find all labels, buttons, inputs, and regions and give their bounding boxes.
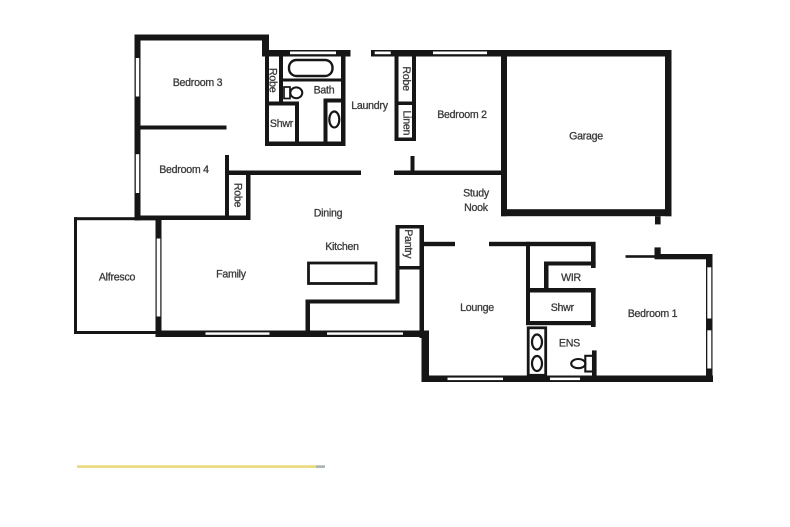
svg-text:Garage: Garage: [569, 131, 603, 143]
svg-text:Kitchen: Kitchen: [325, 241, 359, 253]
svg-text:Shwr: Shwr: [270, 118, 294, 130]
svg-text:Bedroom 1: Bedroom 1: [628, 308, 678, 320]
svg-text:Bedroom 2: Bedroom 2: [437, 109, 487, 121]
svg-text:Pantry: Pantry: [402, 229, 414, 259]
svg-text:Robe: Robe: [232, 183, 244, 208]
svg-text:Laundry: Laundry: [351, 100, 388, 112]
svg-text:Bedroom 3: Bedroom 3: [173, 77, 223, 89]
svg-text:Robe: Robe: [400, 66, 412, 91]
svg-text:Bath: Bath: [314, 85, 335, 97]
svg-text:Dining: Dining: [314, 208, 343, 220]
svg-text:Linen: Linen: [401, 110, 413, 135]
svg-text:Nook: Nook: [464, 202, 489, 214]
svg-text:Lounge: Lounge: [460, 302, 494, 314]
svg-text:Family: Family: [216, 269, 247, 281]
svg-text:WIR: WIR: [561, 272, 581, 284]
svg-text:Shwr: Shwr: [551, 302, 575, 314]
svg-text:Bedroom 4: Bedroom 4: [159, 164, 209, 176]
svg-text:Robe: Robe: [267, 68, 279, 93]
svg-text:ENS: ENS: [559, 338, 580, 350]
svg-text:Study: Study: [463, 188, 490, 200]
svg-text:Alfresco: Alfresco: [99, 272, 136, 284]
